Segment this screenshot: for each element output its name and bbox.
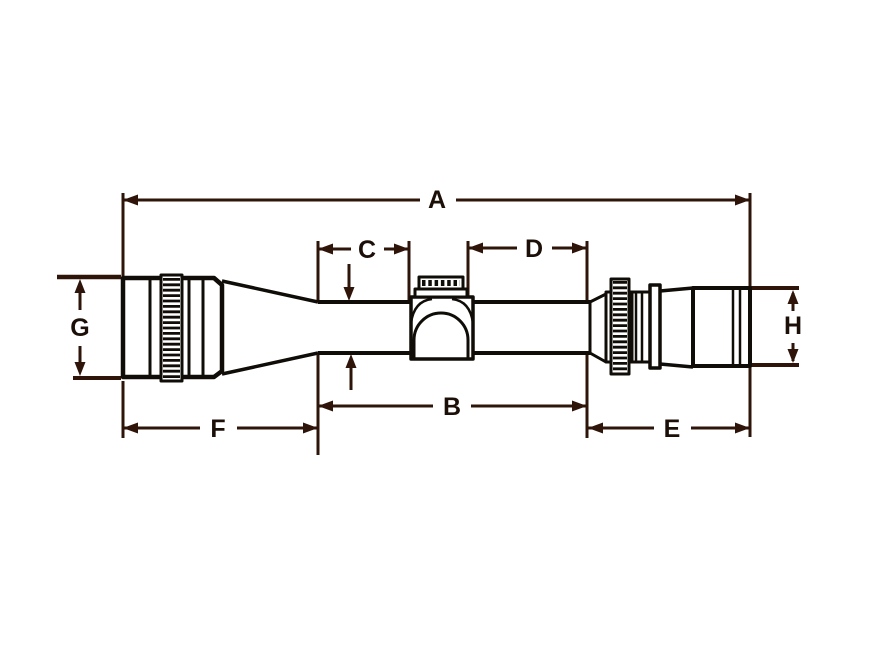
label-E: E (664, 415, 681, 443)
riflescope-dimension-diagram: A B C D E F G H (0, 0, 880, 660)
label-G: G (70, 314, 89, 342)
diagram-canvas: A B C D E F G H (0, 0, 880, 660)
label-D: D (525, 235, 543, 263)
label-H: H (784, 312, 802, 340)
label-F: F (210, 415, 225, 443)
label-C: C (358, 236, 376, 264)
label-B: B (443, 393, 461, 421)
label-A: A (428, 186, 446, 214)
eyepiece-lock-ring (650, 285, 660, 368)
eyepiece-body (693, 288, 750, 366)
